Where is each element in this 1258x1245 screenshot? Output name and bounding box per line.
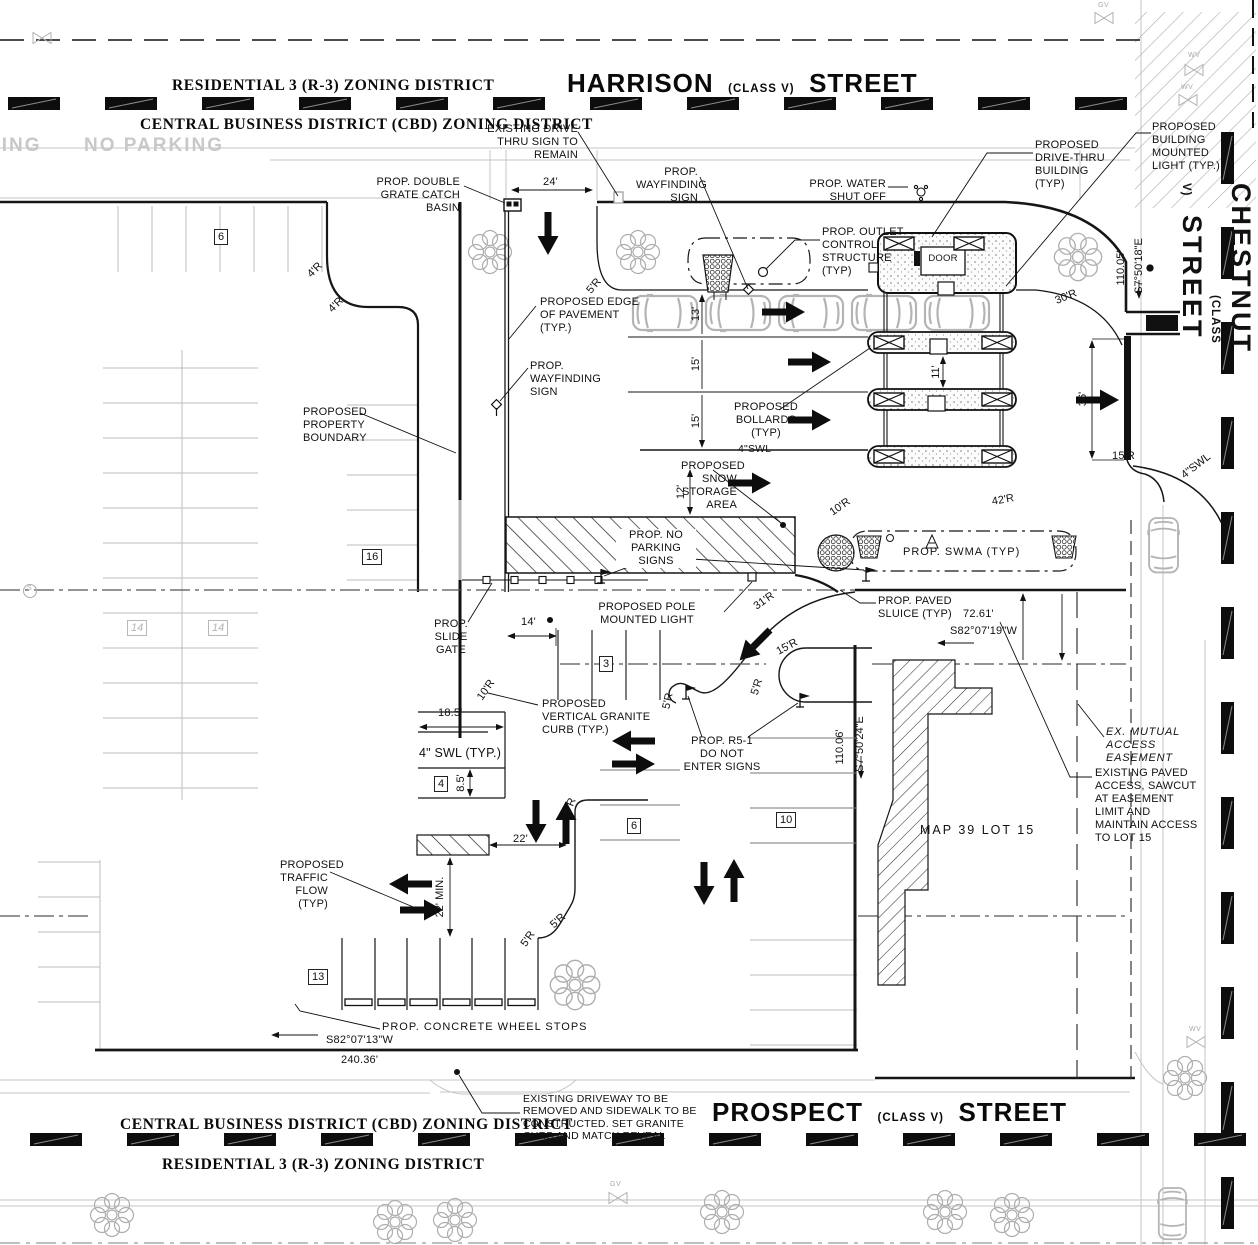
wayfinding-sign-icon (492, 400, 502, 416)
callout-property-boundary: PROPOSED PROPERTY BOUNDARY (303, 406, 367, 445)
callout-wayfinding-top: PROP. WAYFINDING SIGN (636, 166, 698, 205)
gas-valve-icon (609, 1193, 627, 1204)
riprap-icon (703, 255, 733, 292)
drive-thru-sign-icon (614, 192, 623, 203)
tree-icon (1164, 1057, 1207, 1100)
gas-valve-label: GV (610, 1181, 621, 1188)
bollard-group-icon (874, 450, 904, 463)
slide-gate (462, 577, 648, 584)
tree-icon (550, 960, 599, 1009)
callout-building-mounted-light: PROPOSED BUILDING MOUNTED LIGHT (TYP.) (1152, 121, 1220, 173)
dim-72-61: 72.61' (963, 608, 994, 621)
riprap-icon (1052, 536, 1076, 558)
traffic-arrow-icon (788, 352, 831, 373)
callout-paved-sluice: PROP. PAVED SLUICE (TYP) (878, 595, 952, 621)
stall-count-box: 4 (434, 776, 448, 792)
hatched-ramp (417, 835, 489, 855)
drive-thru-islands (868, 293, 1016, 467)
callout-driveway-note: EXISTING DRIVEWAY TO BE REMOVED AND SIDE… (523, 1093, 697, 1143)
dim-15a: 15' (690, 357, 702, 371)
water-valve-icon (1187, 1037, 1205, 1048)
tree-icon (701, 1191, 744, 1234)
stall-count-box: 14 (127, 620, 147, 636)
traffic-arrow-icon (612, 754, 655, 775)
callout-outlet-control: PROP. OUTLET CONTROL STRUCTURE (TYP) (822, 226, 904, 278)
label-map-lot: MAP 39 LOT 15 (920, 823, 1035, 838)
traffic-arrow-icon (724, 859, 745, 902)
tree-icon (1054, 233, 1101, 280)
pavement-marking-partial: KING (0, 135, 42, 157)
street-name-prospect: PROSPECT (CLASS V) STREET (712, 1097, 1067, 1128)
gas-valve-icon (1095, 13, 1113, 24)
bollard-group-icon (874, 393, 904, 406)
dim-14: 14' (521, 616, 536, 629)
callout-wheel-stops: PROP. CONCRETE WHEEL STOPS (382, 1021, 588, 1034)
callout-mutual-easement: EX. MUTUAL ACCESS EASEMENT (1106, 726, 1180, 765)
car-icon (1158, 1188, 1187, 1239)
prospect-class: (CLASS V) (877, 1112, 944, 1124)
zoning-label-bottom-cbd: CENTRAL BUSINESS DISTRICT (CBD) ZONING D… (120, 1116, 573, 1134)
tree-icon (434, 1199, 477, 1242)
traffic-arrow-icon (526, 800, 547, 843)
stall-count-box: 10 (776, 812, 796, 828)
water-valve-label: WV (1188, 52, 1200, 59)
callout-drive-thru-building: PROPOSED DRIVE-THRU BUILDING (TYP) (1035, 139, 1105, 191)
radius-15r-chestnut: 15'R (1112, 450, 1135, 463)
chestnut-type: STREET (1177, 215, 1207, 340)
car-icon (1148, 518, 1179, 572)
prospect-type: STREET (958, 1097, 1067, 1127)
bollard-group-icon (982, 336, 1012, 349)
dim-24: 24' (543, 176, 558, 189)
prospect-name: PROSPECT (712, 1097, 863, 1127)
car-icon (925, 295, 989, 331)
callout-snow-storage: PROPOSED SNOW STORAGE AREA (681, 460, 737, 512)
traffic-arrow-icon (694, 862, 715, 905)
leader-dot (454, 1069, 460, 1075)
dim-22-min: 22' MIN. (434, 877, 446, 918)
car-icon (633, 295, 697, 331)
callout-slide-gate: PROP. SLIDE GATE (428, 618, 474, 657)
bollard-group-icon (982, 393, 1012, 406)
bollard-group-icon (982, 450, 1012, 463)
bearing-s82-07-19w: S82°07'19"W (950, 625, 1017, 638)
car-icon (706, 295, 770, 331)
label-4in-swl-typ: 4" SWL (TYP.) (419, 746, 501, 761)
site-plan: HARRISON (CLASS V) STREET PROSPECT (CLAS… (0, 0, 1258, 1245)
callout-no-parking-signs: PROP. NO PARKING SIGNS (616, 529, 696, 568)
stall-count-box: 16 (362, 549, 382, 565)
label-door: DOOR (921, 253, 965, 264)
tree-icon (924, 1191, 967, 1234)
dim-22: 22' (513, 833, 528, 846)
riprap-icon (857, 536, 881, 558)
callout-water-shut-off: PROP. WATER SHUT OFF (808, 178, 886, 204)
harrison-name: HARRISON (567, 68, 714, 98)
dim-13: 13' (690, 307, 702, 321)
swma-basin (795, 531, 1076, 592)
callout-pole-light: PROPOSED POLE MOUNTED LIGHT (572, 601, 722, 627)
bearing-s82-07-13w: S82°07'13"W (326, 1034, 393, 1047)
chestnut-name: CHESTNUT (1226, 183, 1256, 354)
dim-18-5: 18.5' (438, 707, 463, 720)
dim-8-5: 8.5' (455, 774, 467, 791)
callout-granite-curb: PROPOSED VERTICAL GRANITE CURB (TYP.) (542, 698, 650, 737)
tree-icon (374, 1201, 417, 1244)
harrison-type: STREET (809, 68, 918, 98)
dim-36: 36' (1077, 392, 1089, 406)
callout-traffic-flow: PROPOSED TRAFFIC FLOW (TYP) (280, 859, 328, 911)
water-valve-label: WV (1189, 1026, 1201, 1033)
do-not-enter-sign-icon (682, 685, 696, 699)
leader-dot (780, 522, 786, 528)
bearing-s7-50-24e: S7°50'24"E (854, 716, 866, 772)
stall-count-box: 6 (214, 229, 228, 245)
pole-light-icon (748, 573, 756, 581)
callout-swma: PROP. SWMA (TYP) (903, 546, 1020, 559)
bollard-group-icon (874, 336, 904, 349)
water-shutoff-icon (914, 185, 927, 200)
no-parking-sign-icon (862, 567, 876, 581)
street-name-harrison: HARRISON (CLASS V) STREET (567, 68, 918, 99)
callout-r5-1: PROP. R5-1 DO NOT ENTER SIGNS (678, 735, 766, 774)
dim-15b: 15' (690, 414, 702, 428)
crosswalk-hatch (1135, 12, 1256, 208)
callout-wayfinding-mid: PROP. WAYFINDING SIGN (530, 360, 601, 399)
street-name-chestnut: CHESTNUT (CLASS V) STREET (1176, 183, 1256, 354)
dim-110-06: 110.06' (834, 730, 846, 765)
stall-count-box: 13 (308, 969, 328, 985)
gas-valve-label: GV (1098, 2, 1109, 9)
bearing-s7-50-18e: S7°50'18"E (1133, 238, 1145, 294)
harrison-class: (CLASS V) (728, 83, 795, 95)
tree-icon (617, 231, 660, 274)
dim-110-05: 110.05' (1115, 251, 1127, 286)
stall-count-box: 3 (599, 656, 613, 672)
sewer-manhole-label: S (27, 585, 32, 592)
water-valve-label: WV (1181, 84, 1193, 91)
stall-count-box: 14 (208, 620, 228, 636)
callout-paved-access: EXISTING PAVED ACCESS, SAWCUT AT EASEMEN… (1095, 767, 1197, 845)
callout-double-grate: PROP. DOUBLE GRATE CATCH BASIN (360, 176, 460, 215)
riprap-apron-icon (818, 535, 854, 571)
catch-basin-icon (504, 199, 521, 211)
water-valve-icon (33, 33, 51, 44)
label-4in-swl: 4"SWL (738, 443, 771, 455)
do-not-enter-sign-icon (796, 693, 810, 707)
dim-240-36: 240.36' (341, 1054, 378, 1067)
dim-11: 11' (930, 365, 942, 379)
wayfinding-sign-icon-2 (744, 285, 754, 295)
bollard-group-icon (954, 237, 984, 250)
zoning-label-top-residential: RESIDENTIAL 3 (R-3) ZONING DISTRICT (172, 77, 494, 95)
stall-count-box: 6 (627, 818, 641, 834)
callout-edge-of-pavement: PROPOSED EDGE OF PAVEMENT (TYP.) (540, 296, 639, 335)
callout-bollards: PROPOSED BOLLARDS (TYP) (726, 401, 806, 440)
traffic-arrow-icon (389, 874, 432, 895)
callout-existing-drive-thru-sign: EXISTING DRIVE THRU SIGN TO REMAIN (483, 123, 578, 162)
traffic-arrow-icon (538, 212, 559, 255)
pavement-marking-no-parking: NO PARKING (84, 135, 224, 157)
dim-12: 12' (675, 485, 687, 499)
zoning-label-bottom-residential: RESIDENTIAL 3 (R-3) ZONING DISTRICT (162, 1156, 484, 1174)
